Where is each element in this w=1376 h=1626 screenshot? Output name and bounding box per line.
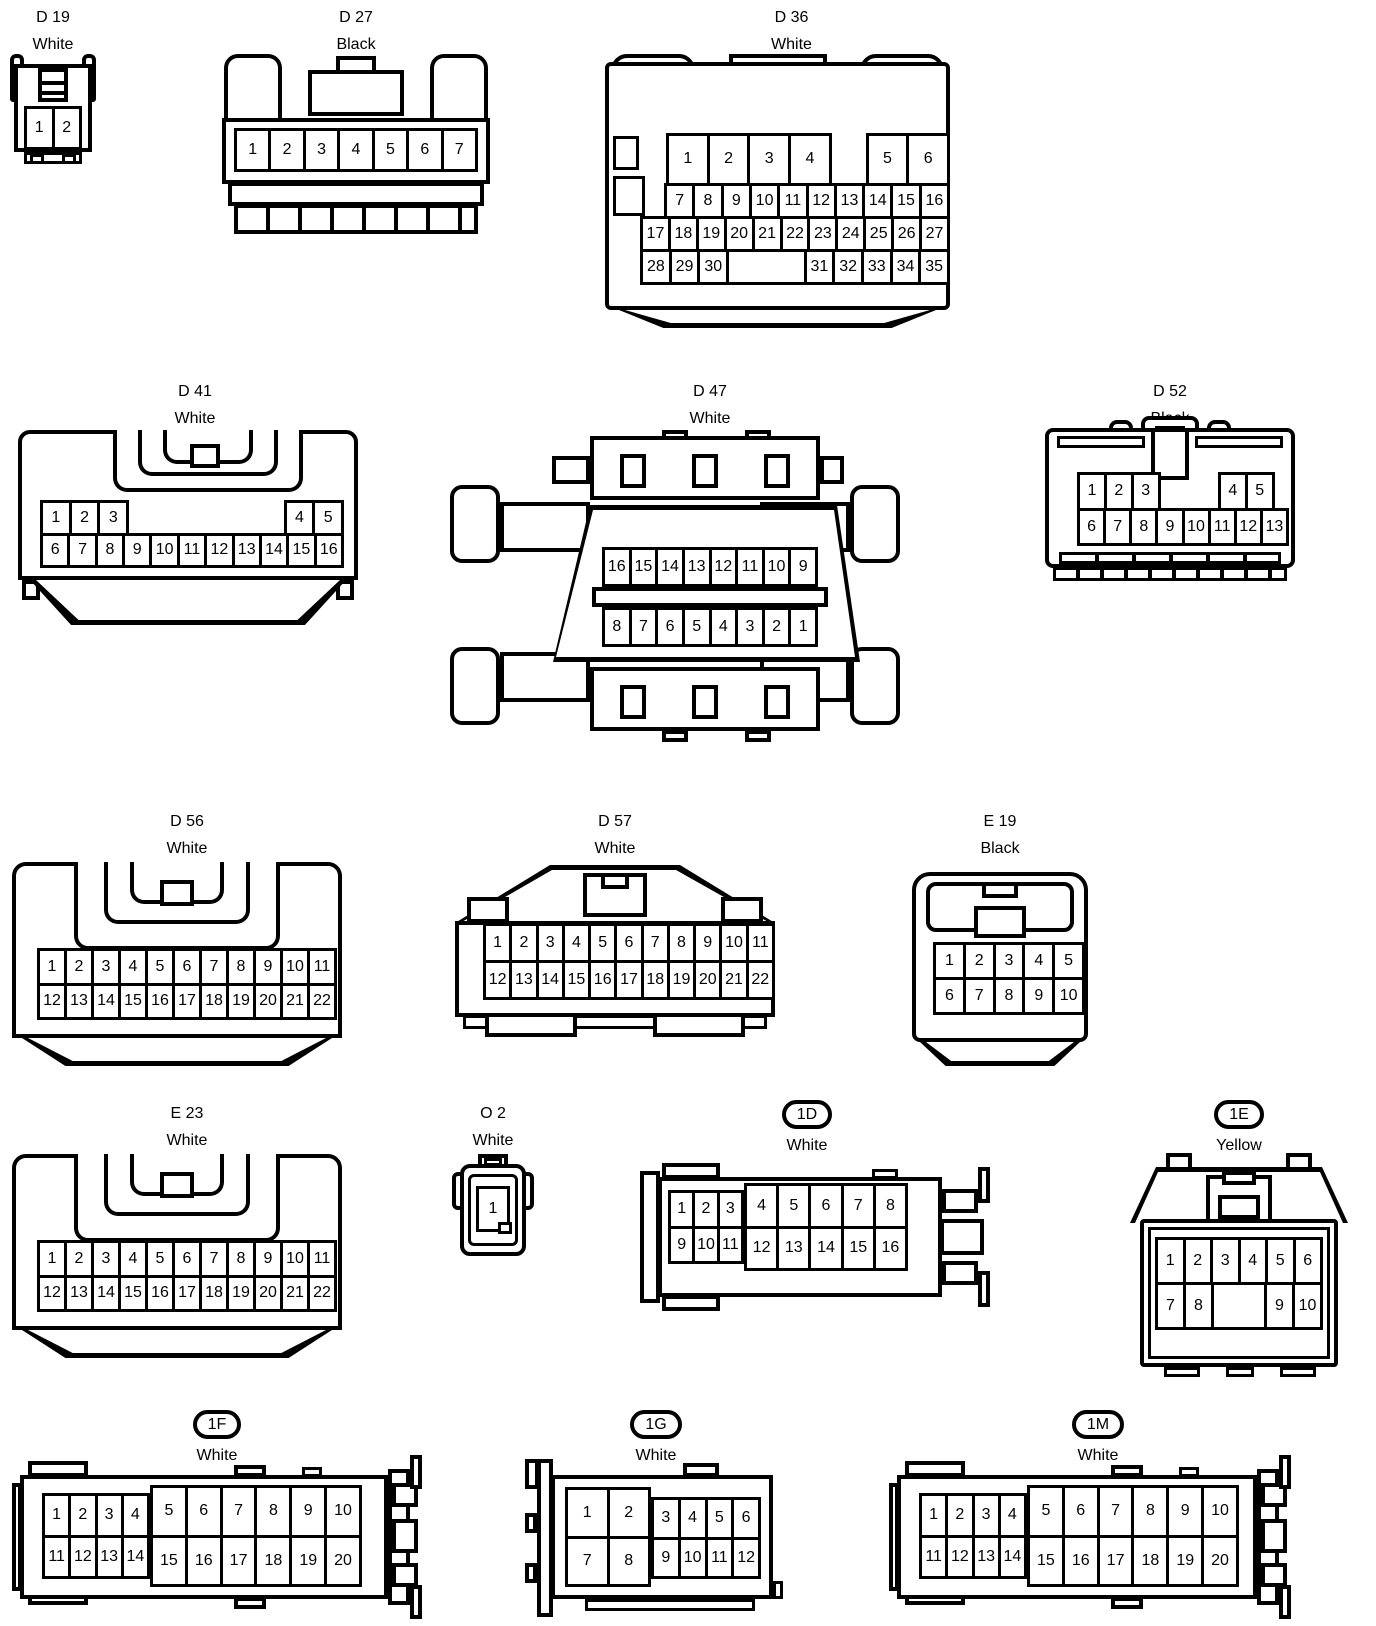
pin-20: 20	[324, 1535, 362, 1588]
pin-row: 45678	[744, 1183, 908, 1229]
pin-19: 19	[226, 1275, 256, 1313]
pin-13: 13	[232, 533, 262, 569]
top-bump-2	[1179, 1467, 1199, 1477]
pin-14: 14	[655, 547, 685, 587]
connector-id-label: D 52	[1045, 382, 1295, 402]
connector-id-label: D 27	[222, 8, 490, 28]
pin-grid: 12345678910	[933, 942, 1085, 1015]
latch	[308, 70, 404, 116]
pin-12: 12	[483, 960, 512, 1000]
pin-5: 5	[372, 128, 409, 172]
pin-6: 6	[731, 1497, 761, 1540]
pin-row: 9101112	[651, 1537, 761, 1580]
bottom-tab-1	[1164, 1367, 1200, 1377]
pin-row: 1213141516171819202122	[37, 983, 337, 1021]
connector-id-badge: 1F	[193, 1410, 242, 1439]
pin-grid-large: 1278	[565, 1487, 651, 1587]
pin-21: 21	[752, 216, 783, 252]
pin-4: 4	[118, 948, 148, 986]
bottom-foot-left	[485, 1013, 577, 1037]
pin-row: 1213141516	[744, 1226, 908, 1272]
pin-15: 15	[1027, 1535, 1065, 1588]
pin-10: 10	[149, 533, 179, 569]
connector-color-label: White	[32, 409, 358, 429]
pin-10: 10	[280, 1240, 310, 1278]
pin-4: 4	[744, 1183, 779, 1229]
latch-tab	[982, 882, 1018, 898]
pin-14: 14	[121, 1535, 150, 1580]
pin-19: 19	[696, 216, 727, 252]
connector-drawing: 123411121314 5678910151617181920	[875, 1467, 1291, 1622]
pin-5: 5	[312, 500, 344, 536]
top-slot-left	[1057, 436, 1145, 448]
pin-2: 2	[64, 1240, 94, 1278]
pin-5: 5	[150, 1485, 188, 1538]
bottom-strip	[1053, 567, 1287, 581]
pin-31: 31	[804, 249, 836, 285]
mount-ear-top-left	[450, 485, 500, 563]
pin-grid: 12345678910111213141516171819202122	[483, 923, 775, 1000]
connector-header: D 41 White	[32, 382, 358, 429]
connector-header: E 19 Black	[912, 812, 1088, 859]
pin-2: 2	[963, 942, 996, 980]
bottom-teeth	[234, 204, 478, 234]
pin-6: 6	[808, 1183, 843, 1229]
pin-14: 14	[998, 1535, 1027, 1580]
pin-14: 14	[862, 183, 893, 219]
bottom-left-tab	[662, 1295, 720, 1311]
pin-20: 20	[724, 216, 755, 252]
connector-header: 1M White	[905, 1410, 1291, 1466]
connector-id-label: O 2	[448, 1104, 538, 1124]
pin-6: 6	[1062, 1485, 1100, 1538]
pin-9: 9	[1022, 977, 1055, 1015]
connector-id-label: E 19	[912, 812, 1088, 832]
pin-3: 3	[1210, 1237, 1241, 1285]
pin-11: 11	[1208, 508, 1237, 547]
pin-8: 8	[667, 923, 696, 963]
pin-17: 17	[172, 1275, 202, 1313]
pin-10: 10	[692, 1226, 719, 1265]
pin-8: 8	[692, 183, 723, 219]
pin-32: 32	[832, 249, 864, 285]
pin-15: 15	[118, 1275, 148, 1313]
connector-color-label: Black	[222, 35, 490, 55]
pin-1: 1	[933, 942, 966, 980]
connector-id-badge: 1M	[1072, 1410, 1124, 1439]
pin-grid: 12345678910111213	[1077, 472, 1289, 546]
pin-6: 6	[614, 923, 643, 963]
right-tab-top	[1279, 1455, 1291, 1489]
bottom-skirt	[920, 1042, 1080, 1066]
connector-color-label: White	[633, 35, 950, 55]
right-tab-top	[978, 1167, 990, 1203]
pin-7: 7	[1097, 1485, 1135, 1538]
pin-10: 10	[280, 948, 310, 986]
pin-17: 17	[640, 216, 671, 252]
pin-18: 18	[668, 216, 699, 252]
pin-5: 5	[145, 1240, 175, 1278]
pin-row: 1234567891011	[483, 923, 775, 963]
connector-drawing: 1234567891011121314151617181920212223242…	[605, 54, 950, 330]
pin-3: 3	[95, 1493, 124, 1538]
pin-gap	[1161, 472, 1218, 511]
connector-id-label: D 57	[455, 812, 775, 832]
pin-7: 7	[841, 1183, 876, 1229]
connector-header: 1F White	[12, 1410, 422, 1466]
pin-9: 9	[1264, 1282, 1295, 1330]
pin-2: 2	[68, 1493, 97, 1538]
latch-center-box	[160, 1172, 194, 1198]
pin-15: 15	[629, 547, 659, 587]
pin-7: 7	[1103, 508, 1132, 547]
pin-13: 13	[64, 1275, 94, 1313]
connector-color-label: White	[10, 35, 96, 55]
bottom-tab-2	[1226, 1367, 1254, 1377]
pin-1: 1	[483, 923, 512, 963]
pin-18: 18	[1131, 1535, 1169, 1588]
pin-row: 1234	[42, 1493, 150, 1538]
pin-2: 2	[607, 1487, 652, 1539]
pin-6: 6	[40, 533, 70, 569]
latch-tab	[601, 873, 629, 889]
pin-row: 12	[24, 106, 82, 150]
pin-2: 2	[762, 607, 792, 647]
pin-grid-small: 123411121314	[42, 1493, 150, 1579]
pin-11: 11	[705, 1537, 735, 1580]
pin-17: 17	[614, 960, 643, 1000]
pin-9: 9	[651, 1537, 681, 1580]
pin-11: 11	[746, 923, 775, 963]
pin-5: 5	[1052, 942, 1085, 980]
pin-18: 18	[199, 1275, 229, 1313]
pin-11: 11	[307, 1240, 337, 1278]
pin-row: 678910111213141516	[40, 533, 344, 569]
pin-4: 4	[562, 923, 591, 963]
pin-7: 7	[641, 923, 670, 963]
top-side-rect-left	[552, 456, 590, 484]
pin-grid-large: 5678910151617181920	[1027, 1485, 1239, 1587]
right-bracket-slot-1	[942, 1189, 978, 1213]
connector-drawing: 12345678910111213141516171819202122	[455, 865, 775, 1047]
top-slot-right	[1195, 436, 1283, 448]
pin-4: 4	[1022, 942, 1055, 980]
pin-7: 7	[565, 1536, 610, 1588]
pin-row: 123456	[640, 133, 950, 186]
latch-ladder	[38, 68, 68, 102]
connector-id-label: D 36	[633, 8, 950, 28]
pin-gap	[1275, 472, 1289, 511]
top-bump-1	[1111, 1465, 1143, 1477]
pin-row: 5678910	[150, 1485, 362, 1538]
pin-row: 12345	[1077, 472, 1289, 511]
pin-7: 7	[441, 128, 478, 172]
pin-row: 678910	[933, 977, 1085, 1015]
pin-3: 3	[972, 1493, 1001, 1538]
pin-16: 16	[1062, 1535, 1100, 1588]
pin-grid: 12345678910	[1155, 1237, 1323, 1330]
right-small-tab	[773, 1581, 783, 1599]
connector-color-label: White	[455, 839, 775, 859]
ear-tab-right	[430, 54, 488, 126]
connector-drawing: 123411121314 5678910151617181920	[12, 1467, 422, 1622]
pin-11: 11	[177, 533, 207, 569]
connector-id-label: E 23	[32, 1104, 342, 1124]
pin-34: 34	[890, 249, 922, 285]
pin-grid-small: 34569101112	[651, 1497, 761, 1579]
center-bar	[592, 587, 828, 607]
index-notch	[498, 1222, 512, 1234]
connector-drawing: 12345678910111213141516	[18, 430, 358, 675]
bottom-strip	[585, 1599, 755, 1611]
pin-row: 1234	[919, 1493, 1027, 1538]
mount-ear-bottom-left	[450, 647, 500, 725]
pin-9: 9	[1166, 1485, 1204, 1538]
connector-header: D 47 White	[520, 382, 900, 429]
connector-header: D 19 White	[10, 8, 96, 55]
pin-3: 3	[303, 128, 340, 172]
pin-5: 5	[145, 948, 175, 986]
pin-17: 17	[1097, 1535, 1135, 1588]
pin-8: 8	[1183, 1282, 1214, 1330]
connector-color-label: White	[32, 839, 342, 859]
pin-16: 16	[602, 547, 632, 587]
pin-blank-cell	[726, 249, 807, 285]
connector-pinout-diagram: D 19 White 12 D 27 Black 1234567	[0, 0, 1376, 1626]
pin-8: 8	[226, 948, 256, 986]
pin-4: 4	[788, 133, 832, 186]
pin-10: 10	[749, 183, 780, 219]
pin-grid: 1234567	[234, 128, 478, 172]
connector-color-label: White	[520, 409, 900, 429]
bottom-tab-2	[745, 730, 771, 742]
left-notch-2	[525, 1563, 537, 1583]
top-bump-1	[234, 1465, 266, 1477]
pin-15: 15	[150, 1535, 188, 1588]
pin-6: 6	[406, 128, 443, 172]
right-tab-bottom	[410, 1585, 422, 1619]
pin-6: 6	[185, 1485, 223, 1538]
pin-19: 19	[289, 1535, 327, 1588]
pin-1: 1	[40, 500, 72, 536]
pin-29: 29	[669, 249, 701, 285]
pin-16: 16	[314, 533, 344, 569]
connector-drawing: 12345678910111213	[1045, 428, 1295, 588]
pin-11: 11	[717, 1226, 744, 1265]
pin-19: 19	[226, 983, 256, 1021]
pin-6: 6	[655, 607, 685, 647]
pin-grid-upper: 161514131211109	[602, 547, 818, 587]
pin-row: 1213141516171819202122	[483, 960, 775, 1000]
pin-30: 30	[697, 249, 729, 285]
pin-row: 78910111213141516	[640, 183, 950, 219]
pin-blank-cell	[1211, 1282, 1267, 1330]
pin-row: 1234567	[234, 128, 478, 172]
pin-22: 22	[780, 216, 811, 252]
connector-header: 1E Yellow	[1130, 1100, 1348, 1156]
top-slot-3	[764, 454, 790, 488]
bottom-slot-2	[692, 685, 718, 719]
pin-row: 87654321	[602, 607, 818, 647]
pin-15: 15	[562, 960, 591, 1000]
pin-gap	[832, 133, 866, 186]
pin-grid-lower: 87654321	[602, 607, 818, 647]
pin-9: 9	[122, 533, 152, 569]
pin-1: 1	[37, 1240, 67, 1278]
pin-4: 4	[709, 607, 739, 647]
pin-2: 2	[1183, 1237, 1214, 1285]
pin-21: 21	[719, 960, 748, 1000]
pin-gap	[129, 500, 283, 536]
lower-step	[228, 182, 484, 206]
pin-7: 7	[199, 948, 229, 986]
top-slot-1	[620, 454, 646, 488]
pin-13: 13	[1260, 508, 1289, 547]
pin-4: 4	[678, 1497, 708, 1540]
pin-19: 19	[1166, 1535, 1204, 1588]
connector-drawing: 12	[10, 54, 96, 170]
pin-4: 4	[1218, 472, 1248, 511]
roof-rect-left	[467, 897, 509, 923]
pin-8: 8	[607, 1536, 652, 1588]
connector-header: E 23 White	[32, 1104, 342, 1151]
top-side-rect-right	[820, 456, 844, 484]
pin-4: 4	[998, 1493, 1027, 1538]
bottom-slot-1	[620, 685, 646, 719]
pin-3: 3	[97, 500, 129, 536]
connector-color-label: White	[525, 1446, 787, 1466]
pin-1: 1	[788, 607, 818, 647]
left-notch-1	[525, 1513, 537, 1533]
connector-drawing: 161514131211109 87654321	[450, 430, 900, 742]
right-slot-3	[1261, 1563, 1287, 1587]
pin-1: 1	[37, 948, 67, 986]
connector-id-label: D 56	[32, 812, 342, 832]
connector-id-badge: 1D	[782, 1100, 832, 1129]
pin-11: 11	[307, 948, 337, 986]
pin-18: 18	[199, 983, 229, 1021]
pin-33: 33	[861, 249, 893, 285]
top-bump-2	[302, 1467, 322, 1477]
latch-center-box	[190, 444, 220, 468]
pin-20: 20	[253, 1275, 283, 1313]
pin-1: 1	[565, 1487, 610, 1539]
pin-12: 12	[1234, 508, 1263, 547]
connector-header: O 2 White	[448, 1104, 538, 1151]
connector-header: D 56 White	[32, 812, 342, 859]
pin-row: 12345	[40, 500, 344, 536]
pin-12: 12	[744, 1226, 779, 1272]
pin-4: 4	[284, 500, 316, 536]
pin-8: 8	[602, 607, 632, 647]
pin-19: 19	[667, 960, 696, 1000]
connector-id-label: D 47	[520, 382, 900, 402]
pin-row: 123456	[1155, 1237, 1323, 1285]
bottom-slot-3	[764, 685, 790, 719]
pin-6: 6	[906, 133, 950, 186]
pin-gap	[640, 133, 666, 186]
connector-color-label: Yellow	[1130, 1136, 1348, 1156]
pin-14: 14	[808, 1226, 843, 1272]
pin-20: 20	[693, 960, 722, 1000]
pin-10: 10	[1201, 1485, 1239, 1538]
pin-13: 13	[834, 183, 865, 219]
side-rail-top-left	[500, 502, 590, 552]
pin-1: 1	[666, 133, 710, 186]
connector-drawing: 12345678910	[912, 872, 1088, 1068]
pin-gap	[640, 183, 664, 219]
mount-ear-top-right	[850, 485, 900, 563]
pin-22: 22	[307, 1275, 337, 1313]
pin-9: 9	[253, 948, 283, 986]
pin-8: 8	[95, 533, 125, 569]
pin-5: 5	[705, 1497, 735, 1540]
pin-12: 12	[68, 1535, 97, 1580]
pin-10: 10	[1052, 977, 1085, 1015]
latch-notch	[974, 906, 1026, 938]
connector-drawing: 1278 34569101112	[525, 1467, 787, 1622]
pin-15: 15	[286, 533, 316, 569]
pin-1: 1	[919, 1493, 948, 1538]
pin-row: 1718192021222324252627	[640, 216, 950, 252]
connector-drawing: 12345678910111213141516171819202122	[12, 1154, 342, 1360]
connector-color-label: White	[640, 1136, 974, 1156]
pin-1: 1	[42, 1493, 71, 1538]
pin-10: 10	[762, 547, 792, 587]
pin-7: 7	[199, 1240, 229, 1278]
pin-12: 12	[204, 533, 234, 569]
pin-2: 2	[52, 106, 83, 150]
connector-header: D 27 Black	[222, 8, 490, 55]
pin-grid-large: 5678910151617181920	[150, 1485, 362, 1587]
pin-11: 11	[919, 1535, 948, 1580]
pin-14: 14	[536, 960, 565, 1000]
connector-drawing: 1	[448, 1154, 538, 1269]
pin-16: 16	[145, 1275, 175, 1313]
pin-15: 15	[890, 183, 921, 219]
pin-2: 2	[64, 948, 94, 986]
pin-5: 5	[866, 133, 910, 186]
pin-10: 10	[1292, 1282, 1323, 1330]
pin-14: 14	[91, 983, 121, 1021]
pin-grid-small: 12391011	[668, 1190, 744, 1264]
pin-row: 78910	[1155, 1282, 1323, 1330]
pin-3: 3	[993, 942, 1026, 980]
pin-2: 2	[707, 133, 751, 186]
pin-7: 7	[963, 977, 996, 1015]
connector-color-label: Black	[912, 839, 1088, 859]
connector-header: D 57 White	[455, 812, 775, 859]
pin-row: 12345	[933, 942, 1085, 980]
pin-grid: 1234567891011121314151617181920212223242…	[640, 133, 950, 285]
connector-header: 1D White	[640, 1100, 974, 1156]
pin-17: 17	[172, 983, 202, 1021]
pin-7: 7	[67, 533, 97, 569]
pin-8: 8	[993, 977, 1026, 1015]
lower-slot-strip	[1059, 552, 1281, 564]
pin-row: 3456	[651, 1497, 761, 1540]
bottom-bump	[234, 1597, 266, 1609]
pin-9: 9	[1155, 508, 1184, 547]
connector-drawing: 12345678910111213141516171819202122	[12, 862, 342, 1068]
pin-9: 9	[668, 1226, 695, 1265]
pin-2: 2	[692, 1190, 719, 1229]
pin-27: 27	[919, 216, 950, 252]
pin-17: 17	[220, 1535, 258, 1588]
pin-2: 2	[509, 923, 538, 963]
pin-10: 10	[678, 1537, 708, 1580]
pin-7: 7	[629, 607, 659, 647]
